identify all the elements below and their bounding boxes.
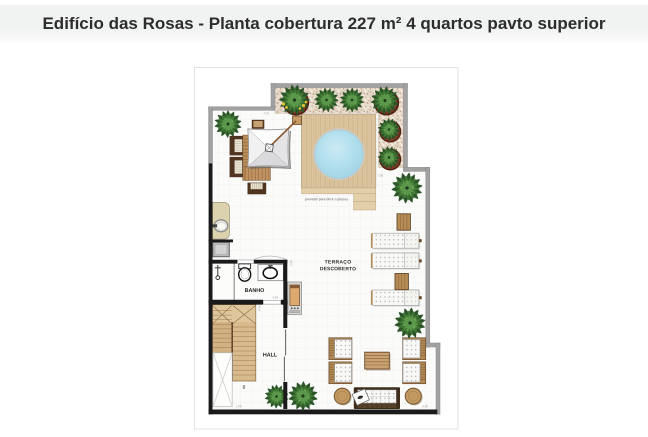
svg-text:BANHO: BANHO: [245, 288, 265, 294]
svg-text:DESCOBERTO: DESCOBERTO: [320, 266, 356, 272]
svg-text:4.91: 4.91: [263, 111, 269, 115]
svg-text:8: 8: [243, 385, 246, 391]
svg-text:4.89: 4.89: [257, 305, 261, 311]
svg-text:TERRAÇO: TERRAÇO: [325, 259, 352, 265]
svg-text:7.06: 7.06: [377, 174, 383, 178]
svg-text:1.80: 1.80: [236, 404, 242, 408]
svg-text:5.26: 5.26: [422, 404, 428, 408]
svg-text:HALL: HALL: [263, 352, 278, 358]
svg-text:previsão para deck e piscina: previsão para deck e piscina: [305, 197, 348, 201]
svg-text:2.84: 2.84: [289, 260, 293, 266]
svg-text:2.84: 2.84: [273, 295, 279, 299]
